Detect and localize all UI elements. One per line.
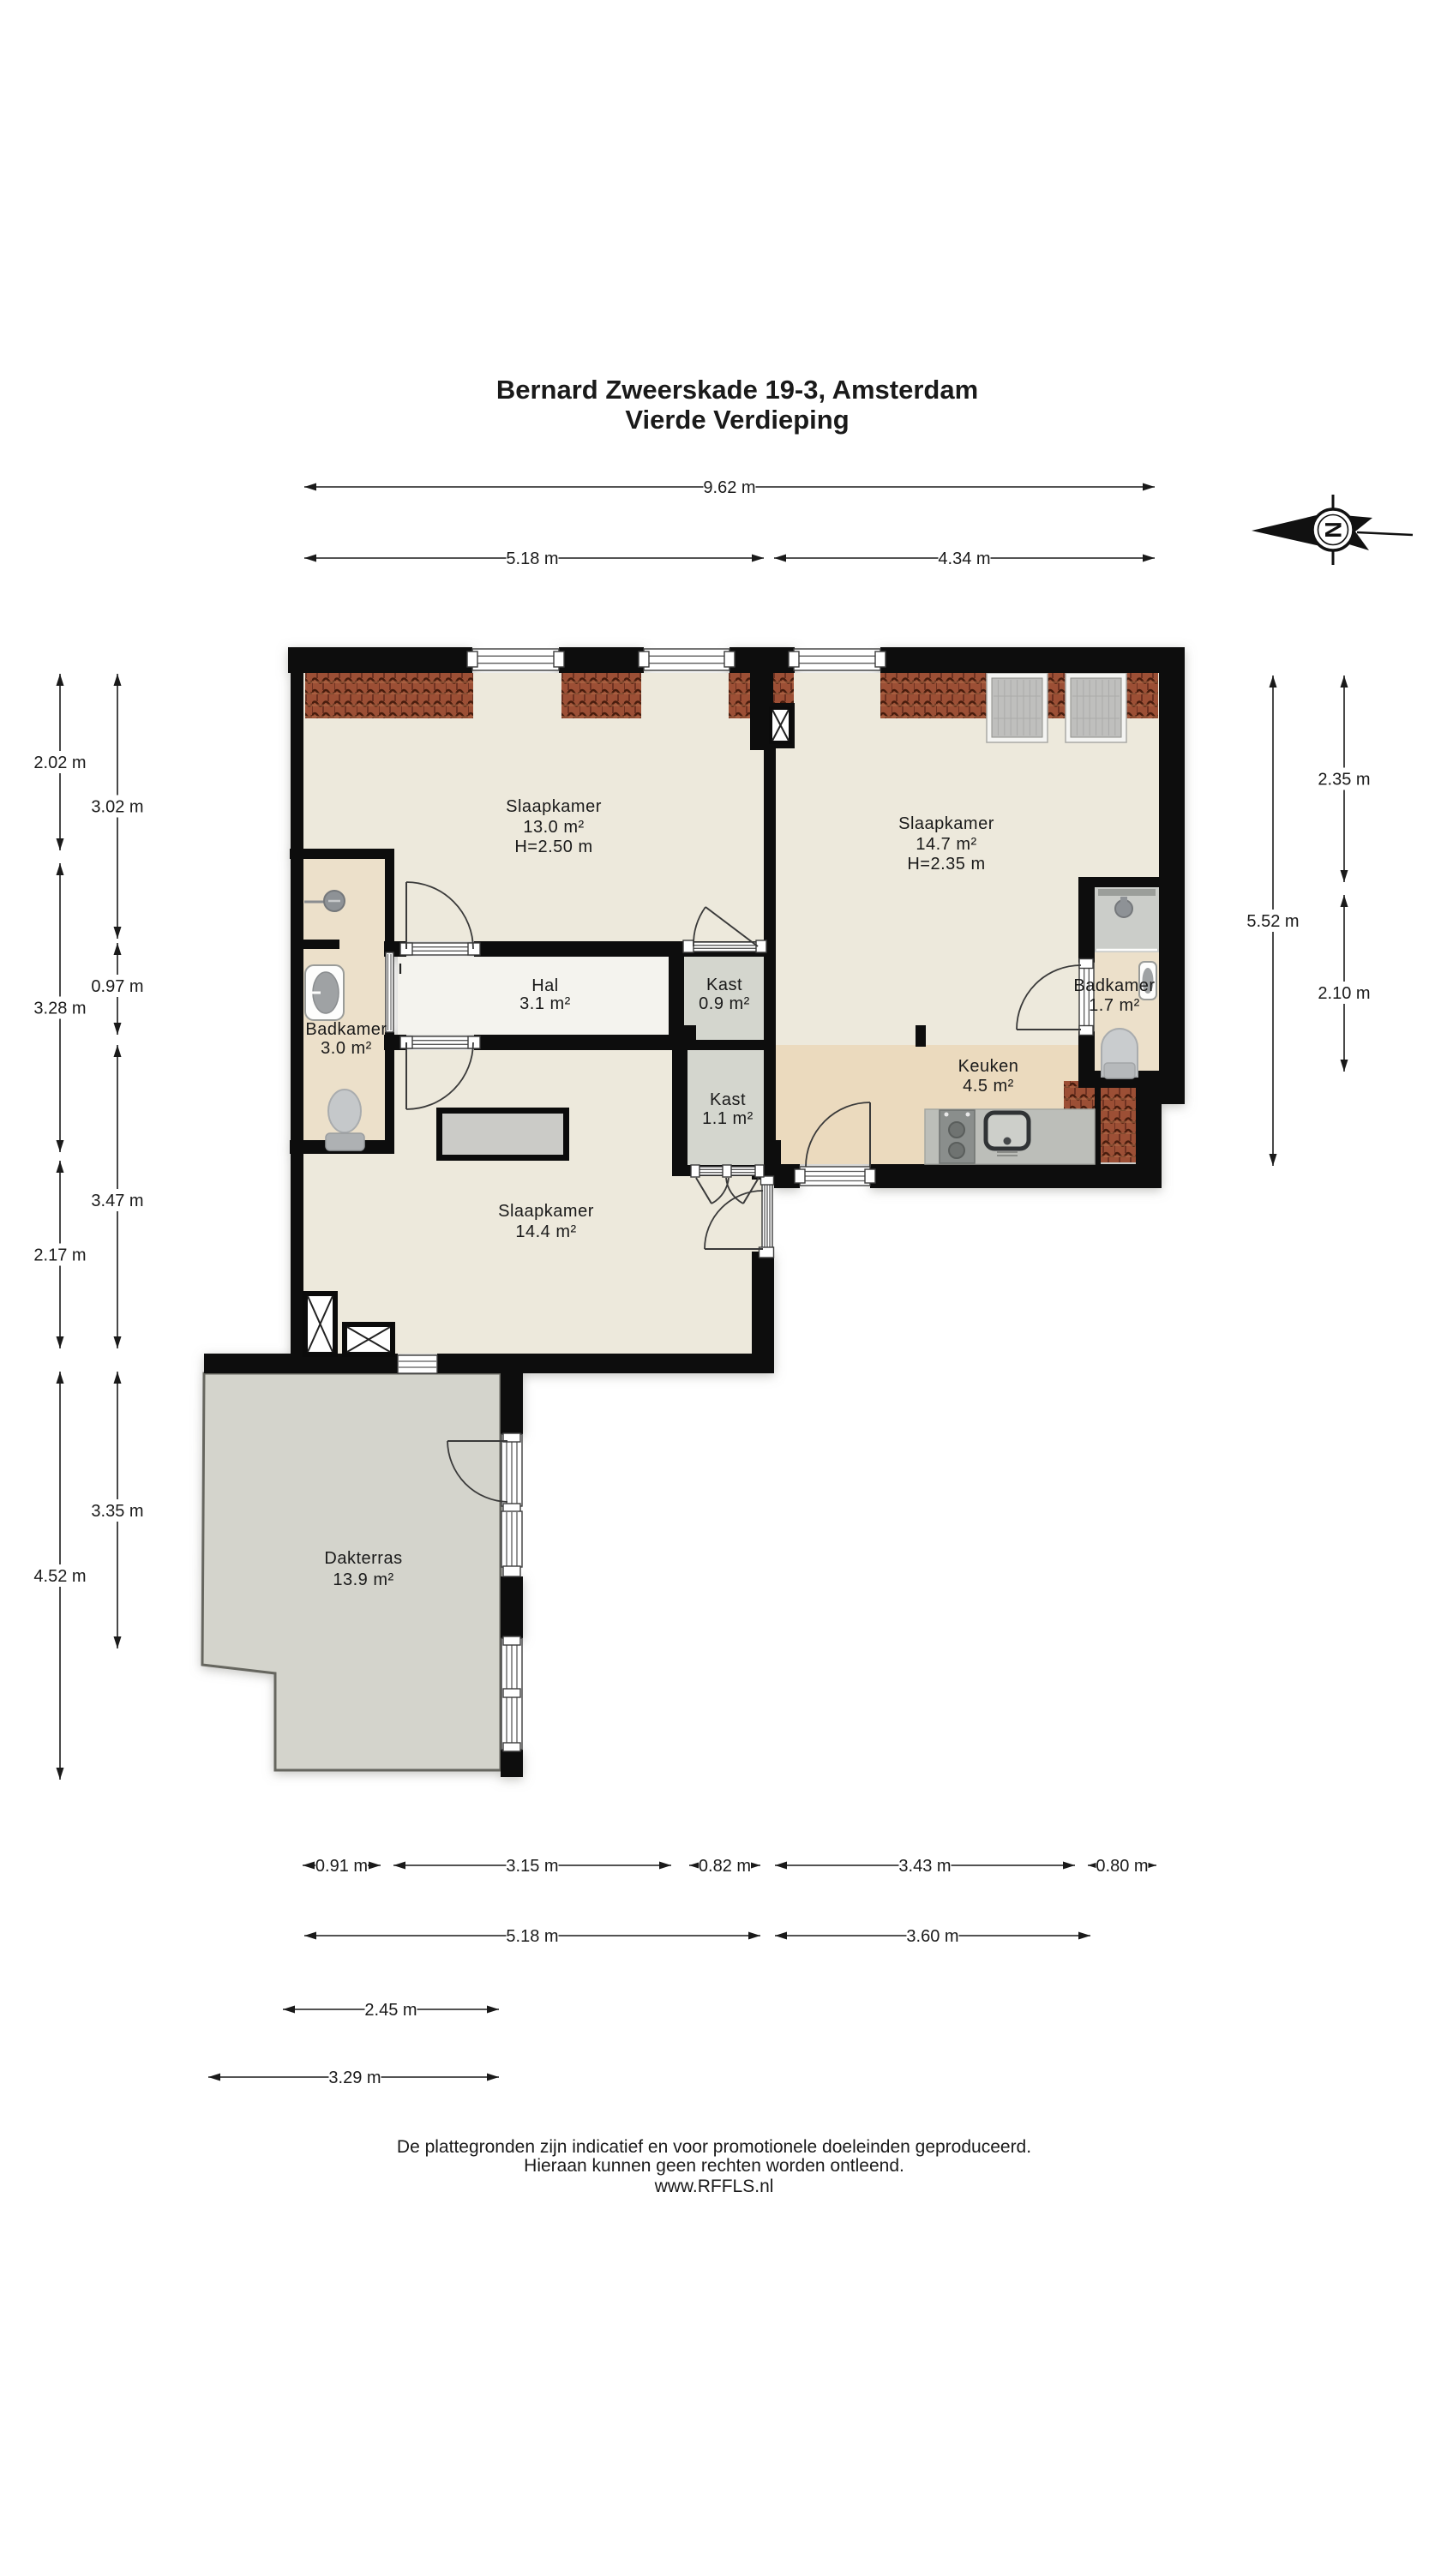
svg-text:3.29 m: 3.29 m xyxy=(328,2069,381,2087)
svg-text:3.15 m: 3.15 m xyxy=(506,1857,558,1876)
svg-text:2.02 m: 2.02 m xyxy=(33,754,86,772)
svg-text:0.82 m: 0.82 m xyxy=(699,1857,751,1876)
svg-text:www.RFFLS.nl: www.RFFLS.nl xyxy=(654,2177,774,2196)
svg-text:Vierde Verdieping: Vierde Verdieping xyxy=(625,405,849,435)
svg-text:2.10 m: 2.10 m xyxy=(1318,984,1370,1003)
svg-text:5.18 m: 5.18 m xyxy=(506,1927,558,1946)
svg-text:Bernard Zweerskade 19-3, Amste: Bernard Zweerskade 19-3, Amsterdam xyxy=(496,375,978,405)
svg-text:Keuken: Keuken xyxy=(958,1057,1019,1076)
svg-text:Hal: Hal xyxy=(531,976,559,995)
svg-text:Slaapkamer: Slaapkamer xyxy=(506,797,602,816)
svg-text:0.9 m²: 0.9 m² xyxy=(699,994,750,1013)
svg-text:Kast: Kast xyxy=(706,976,742,994)
svg-text:H=2.50 m: H=2.50 m xyxy=(514,838,592,856)
svg-text:5.52 m: 5.52 m xyxy=(1246,912,1299,931)
svg-text:4.52 m: 4.52 m xyxy=(33,1567,86,1586)
svg-text:14.4 m²: 14.4 m² xyxy=(515,1222,576,1241)
svg-text:Kast: Kast xyxy=(710,1090,746,1109)
svg-text:2.45 m: 2.45 m xyxy=(364,2001,417,2020)
svg-text:Badkamer: Badkamer xyxy=(305,1020,387,1039)
svg-text:H=2.35 m: H=2.35 m xyxy=(907,855,985,874)
svg-text:3.0 m²: 3.0 m² xyxy=(321,1039,372,1058)
svg-text:3.60 m: 3.60 m xyxy=(906,1927,958,1946)
svg-text:0.97 m: 0.97 m xyxy=(91,977,143,996)
svg-text:13.0 m²: 13.0 m² xyxy=(523,818,584,837)
svg-text:Slaapkamer: Slaapkamer xyxy=(898,814,994,833)
svg-text:13.9 m²: 13.9 m² xyxy=(333,1570,393,1589)
svg-text:3.02 m: 3.02 m xyxy=(91,798,143,817)
svg-text:5.18 m: 5.18 m xyxy=(506,549,558,568)
svg-text:1.7 m²: 1.7 m² xyxy=(1089,996,1140,1015)
svg-text:3.1 m²: 3.1 m² xyxy=(519,994,571,1013)
svg-text:2.17 m: 2.17 m xyxy=(33,1246,86,1265)
svg-text:9.62 m: 9.62 m xyxy=(703,478,755,497)
svg-text:4.5 m²: 4.5 m² xyxy=(963,1077,1014,1096)
svg-text:2.35 m: 2.35 m xyxy=(1318,771,1370,790)
svg-text:4.34 m: 4.34 m xyxy=(938,549,990,568)
svg-text:1.1 m²: 1.1 m² xyxy=(702,1109,754,1128)
svg-text:3.47 m: 3.47 m xyxy=(91,1192,143,1210)
svg-text:Dakterras: Dakterras xyxy=(324,1549,402,1568)
svg-text:Hieraan kunnen geen rechten wo: Hieraan kunnen geen rechten worden ontle… xyxy=(524,2156,904,2176)
svg-text:Badkamer: Badkamer xyxy=(1073,976,1155,995)
svg-text:0.80 m: 0.80 m xyxy=(1096,1857,1148,1876)
svg-text:Slaapkamer: Slaapkamer xyxy=(498,1202,594,1221)
svg-text:0.91 m: 0.91 m xyxy=(315,1857,368,1876)
svg-text:3.43 m: 3.43 m xyxy=(898,1857,951,1876)
svg-text:N: N xyxy=(1321,521,1347,538)
svg-text:14.7 m²: 14.7 m² xyxy=(916,835,976,854)
svg-text:3.28 m: 3.28 m xyxy=(33,1000,86,1018)
svg-text:De plattegronden zijn indicati: De plattegronden zijn indicatief en voor… xyxy=(397,2137,1031,2157)
svg-text:3.35 m: 3.35 m xyxy=(91,1502,143,1521)
